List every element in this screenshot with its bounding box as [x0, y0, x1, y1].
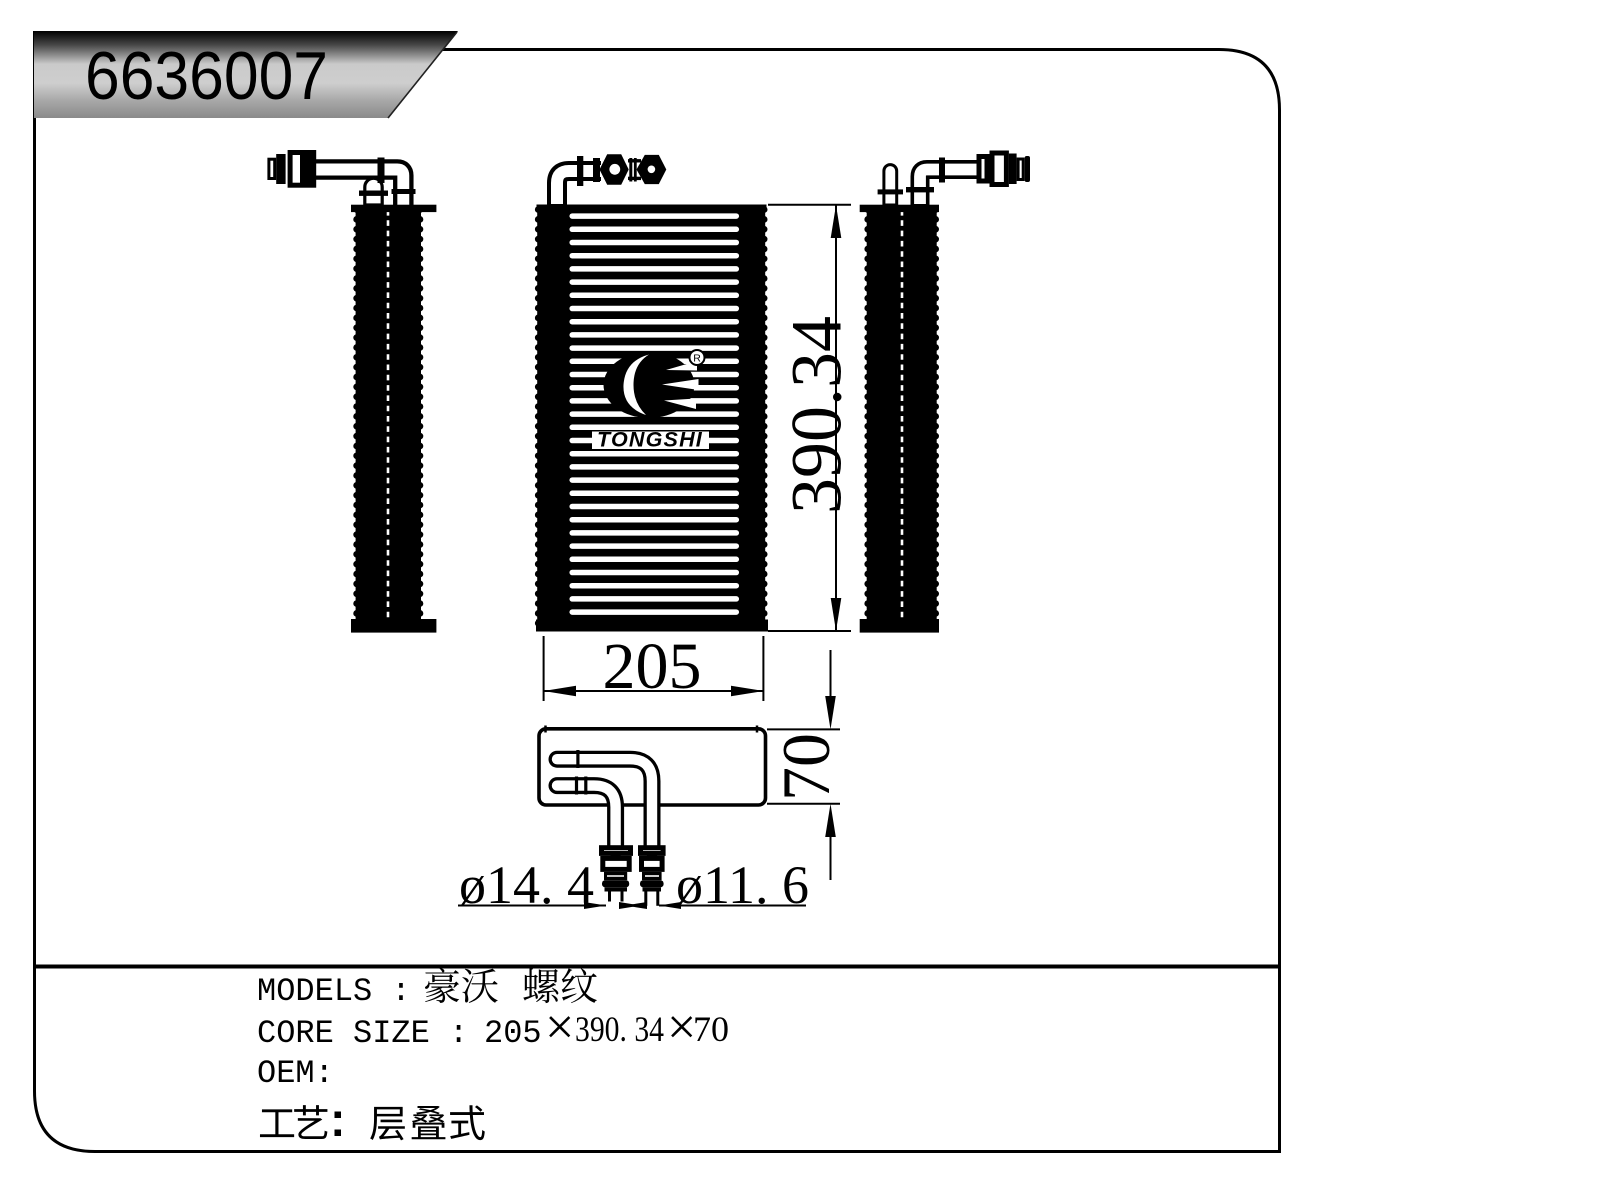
- svg-text:390.34: 390.34: [777, 316, 857, 514]
- svg-text:205: 205: [484, 1015, 542, 1052]
- svg-text:MODELS :: MODELS :: [257, 973, 411, 1010]
- svg-text:OEM:: OEM:: [257, 1055, 334, 1092]
- svg-text:205: 205: [603, 630, 702, 703]
- svg-text:×: ×: [667, 999, 696, 1056]
- svg-text:CORE SIZE :: CORE SIZE :: [257, 1015, 468, 1052]
- svg-text:70: 70: [693, 1009, 729, 1049]
- svg-text:TONGSHI: TONGSHI: [597, 428, 703, 452]
- svg-text:6636007: 6636007: [85, 38, 328, 114]
- svg-text:R: R: [693, 353, 701, 365]
- svg-text:390. 34: 390. 34: [575, 1009, 664, 1049]
- svg-text:70: 70: [768, 733, 844, 801]
- svg-text:×: ×: [545, 999, 574, 1056]
